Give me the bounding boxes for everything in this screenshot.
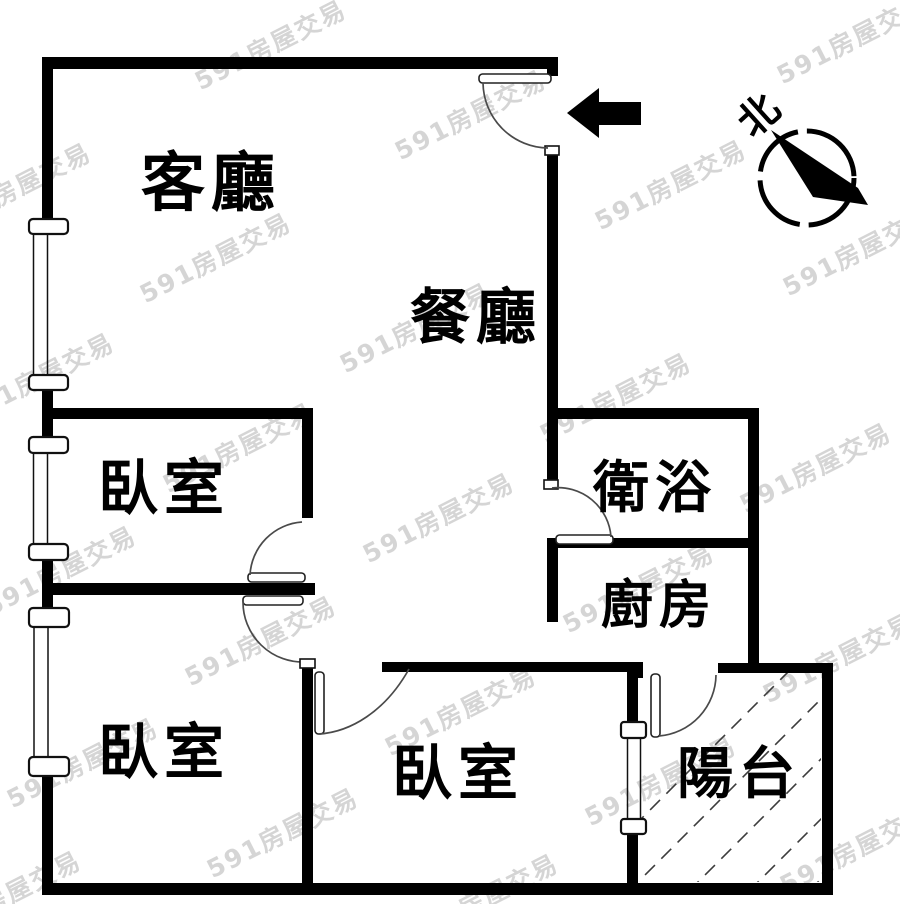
entry-arrow-icon [567,88,641,138]
door-entry-arc [483,83,548,148]
door-bedroom3-arc [319,669,409,734]
door-entry [479,74,559,155]
door-bathroom-leaf [556,535,613,544]
door-entry-leaf [479,74,551,83]
wall-bed1-bed2-divider [42,583,315,595]
wall-bottom [42,883,833,895]
wall-top [42,57,558,69]
doors [243,74,716,737]
door-bedroom2-leaf [243,596,303,605]
window-living-left [29,219,68,390]
door-bedroom3 [315,669,409,734]
wall-bath-top [547,408,759,419]
wall-right-mid [547,540,558,622]
window-bedroom1-left [29,437,68,560]
window-bedroom2-left [29,608,69,776]
door-bedroom3-leaf [315,672,324,734]
wall-right-upper [547,148,558,488]
wall-top-right-stub [547,57,558,76]
door-balcony [651,674,716,737]
door-bedroom2-jamb [300,659,315,668]
door-bedroom2 [243,596,315,668]
wall-bed3-balcony-lower [627,834,638,895]
wall-bed1-right [302,408,313,518]
north-compass-icon [760,130,868,225]
door-balcony-leaf [651,674,660,737]
wall-balcony-right [822,663,833,895]
floorplan-page: 591房屋交易591房屋交易591房屋交易591房屋交易591房屋交易591房屋… [0,0,900,904]
wall-balcony-top [718,663,833,673]
door-bedroom1-leaf [248,573,305,582]
door-bathroom-arc [552,488,611,537]
door-balcony-arc [659,675,716,736]
door-bathroom [544,480,613,544]
wall-bed3-top [382,662,643,672]
wall-left-1 [42,57,53,220]
walls [42,57,833,895]
wall-bed2-right [302,663,313,895]
wall-bed3-balcony-upper [627,663,638,723]
floorplan-drawing [0,0,900,904]
door-bedroom1-arc [250,522,302,575]
door-bedroom1 [248,522,305,582]
wall-bed1-top [42,408,313,419]
wall-left-4 [42,776,53,895]
door-bedroom2-arc [243,601,306,662]
